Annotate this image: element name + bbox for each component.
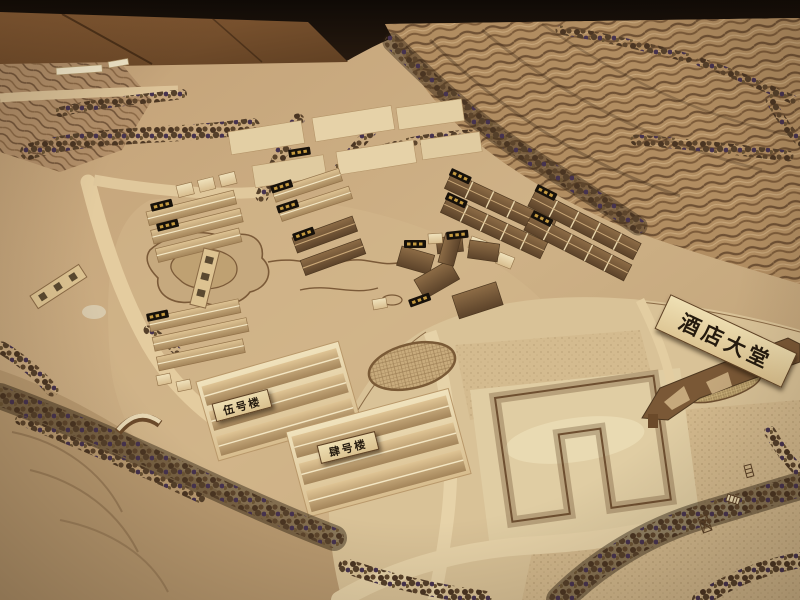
model-photo: 酒店大堂 伍号楼 肆号楼 — [0, 0, 800, 600]
stone-block — [82, 305, 106, 319]
